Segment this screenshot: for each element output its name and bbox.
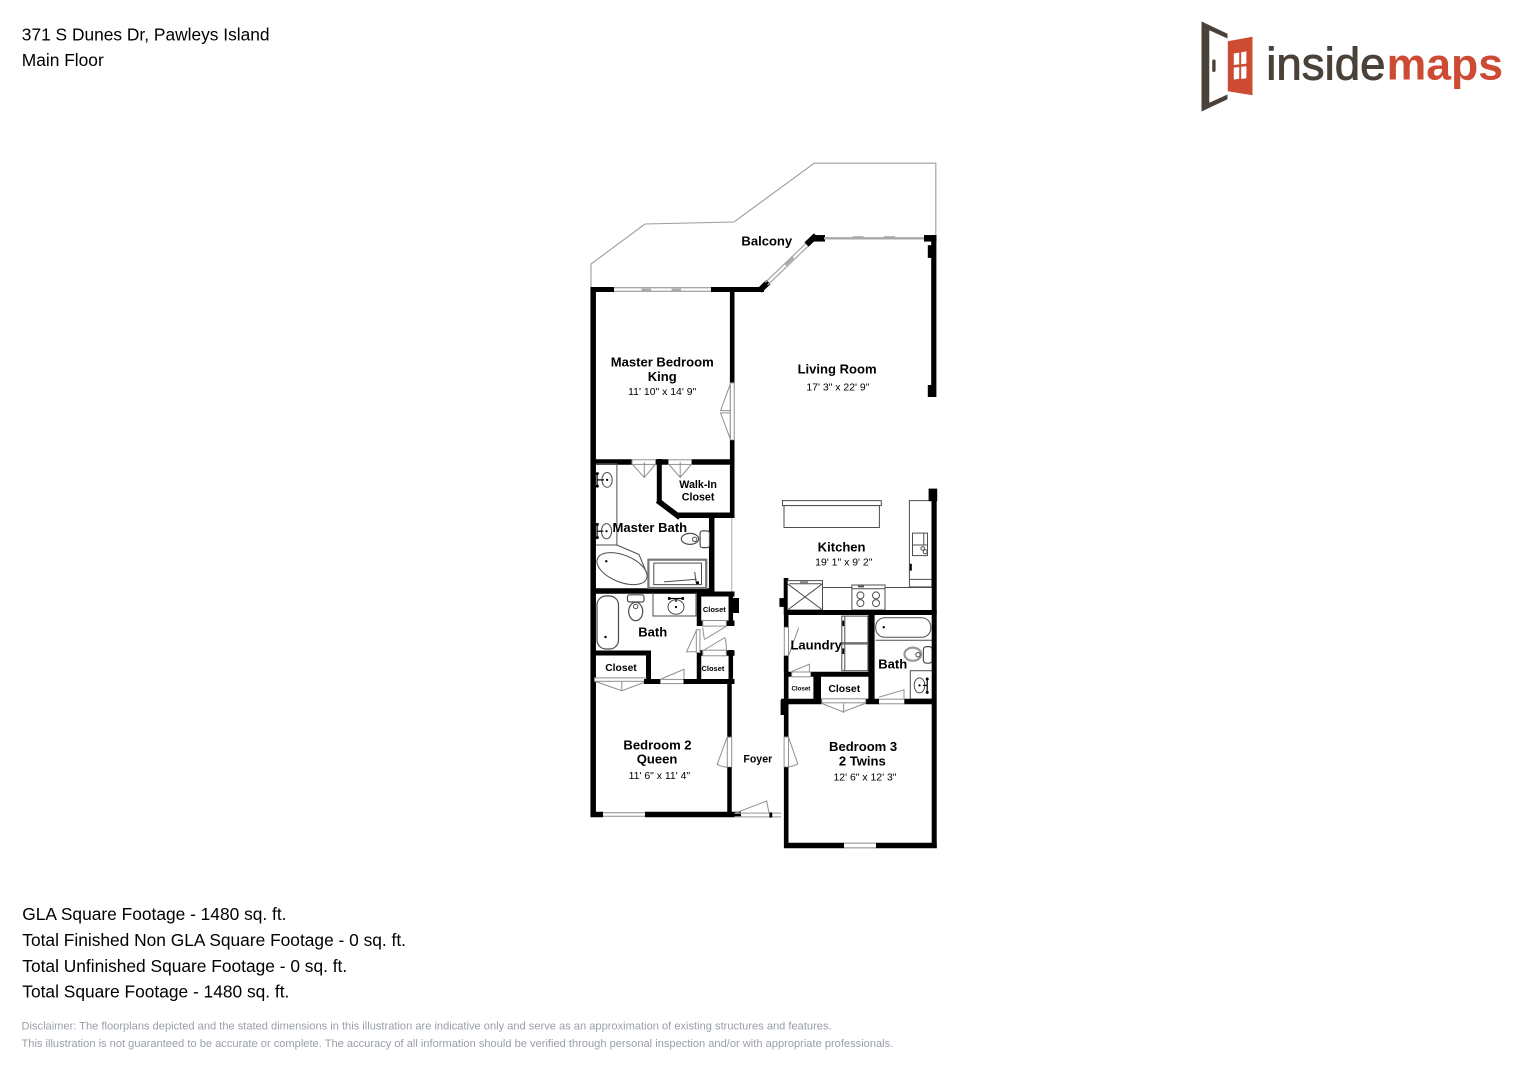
svg-text:Master Bath: Master Bath <box>612 520 687 535</box>
svg-text:19' 1" x 9' 2": 19' 1" x 9' 2" <box>815 558 873 569</box>
svg-text:GLA Square Footage - 1480 sq.: GLA Square Footage - 1480 sq. ft. <box>22 904 286 924</box>
svg-text:11' 6" x 11' 4": 11' 6" x 11' 4" <box>629 771 691 782</box>
svg-text:Disclaimer: The floorplans dep: Disclaimer: The floorplans depicted and … <box>22 1020 832 1032</box>
svg-text:Total Square Footage - 1480 sq: Total Square Footage - 1480 sq. ft. <box>22 982 289 1002</box>
svg-text:King: King <box>648 369 677 384</box>
svg-text:Total Finished Non GLA Square: Total Finished Non GLA Square Footage - … <box>22 930 406 950</box>
svg-text:17' 3" x 22' 9": 17' 3" x 22' 9" <box>806 383 869 394</box>
svg-text:Bedroom 2: Bedroom 2 <box>623 738 691 753</box>
svg-text:Total Unfinished Square Footag: Total Unfinished Square Footage - 0 sq. … <box>22 956 347 976</box>
svg-text:Bath: Bath <box>878 656 907 671</box>
svg-text:Bedroom 3: Bedroom 3 <box>829 739 897 754</box>
svg-text:maps: maps <box>1387 40 1504 89</box>
svg-text:Closet: Closet <box>701 664 724 673</box>
svg-text:Kitchen: Kitchen <box>818 539 866 554</box>
svg-text:Walk-In: Walk-In <box>679 479 717 491</box>
svg-text:Balcony: Balcony <box>741 234 792 249</box>
svg-text:inside: inside <box>1266 38 1385 89</box>
svg-text:11' 10" x 14' 9": 11' 10" x 14' 9" <box>628 387 696 398</box>
svg-text:Closet: Closet <box>791 685 810 692</box>
svg-text:12' 6" x 12' 3": 12' 6" x 12' 3" <box>833 773 896 784</box>
svg-text:Laundry: Laundry <box>790 638 842 653</box>
svg-text:This illustration is not guara: This illustration is not guaranteed to b… <box>22 1038 894 1050</box>
svg-text:Closet: Closet <box>682 491 715 503</box>
svg-text:Foyer: Foyer <box>743 754 772 766</box>
svg-text:371 S Dunes Dr, Pawleys Island: 371 S Dunes Dr, Pawleys Island <box>22 24 270 44</box>
svg-text:Closet: Closet <box>605 663 637 674</box>
svg-text:Closet: Closet <box>828 684 860 695</box>
svg-text:Bath: Bath <box>638 625 667 640</box>
svg-text:Living Room: Living Room <box>798 362 877 377</box>
svg-text:Queen: Queen <box>637 752 678 767</box>
svg-text:Closet: Closet <box>703 605 726 614</box>
svg-text:Main Floor: Main Floor <box>22 50 104 70</box>
svg-text:Master Bedroom: Master Bedroom <box>611 354 714 369</box>
svg-text:2 Twins: 2 Twins <box>839 753 886 768</box>
